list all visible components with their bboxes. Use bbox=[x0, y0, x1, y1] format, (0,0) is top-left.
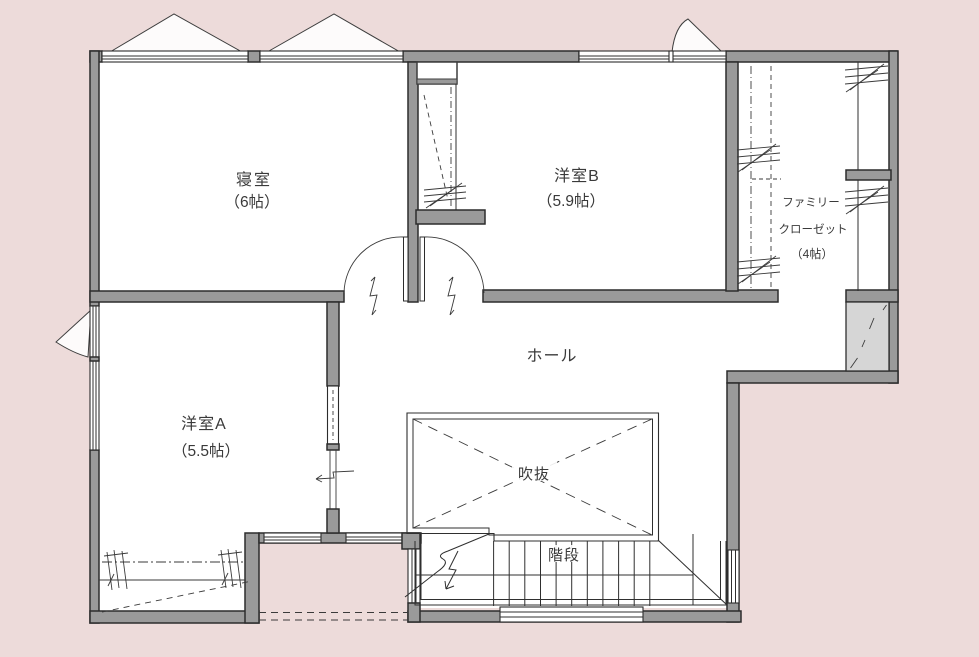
svg-text:（5.5帖）: （5.5帖） bbox=[172, 442, 240, 460]
svg-text:寝室: 寝室 bbox=[236, 170, 272, 189]
svg-text:（6帖）: （6帖） bbox=[224, 193, 279, 211]
svg-text:階段: 階段 bbox=[548, 547, 580, 564]
svg-text:クローゼット: クローゼット bbox=[779, 223, 848, 236]
svg-text:吹抜: 吹抜 bbox=[518, 466, 550, 483]
svg-text:洋室A: 洋室A bbox=[181, 415, 227, 433]
svg-text:ホール: ホール bbox=[526, 348, 577, 365]
svg-text:洋室B: 洋室B bbox=[554, 167, 600, 185]
svg-text:（5.9帖）: （5.9帖） bbox=[537, 192, 605, 210]
svg-text:ファミリー: ファミリー bbox=[782, 197, 840, 209]
svg-text:（4帖）: （4帖） bbox=[791, 246, 834, 261]
